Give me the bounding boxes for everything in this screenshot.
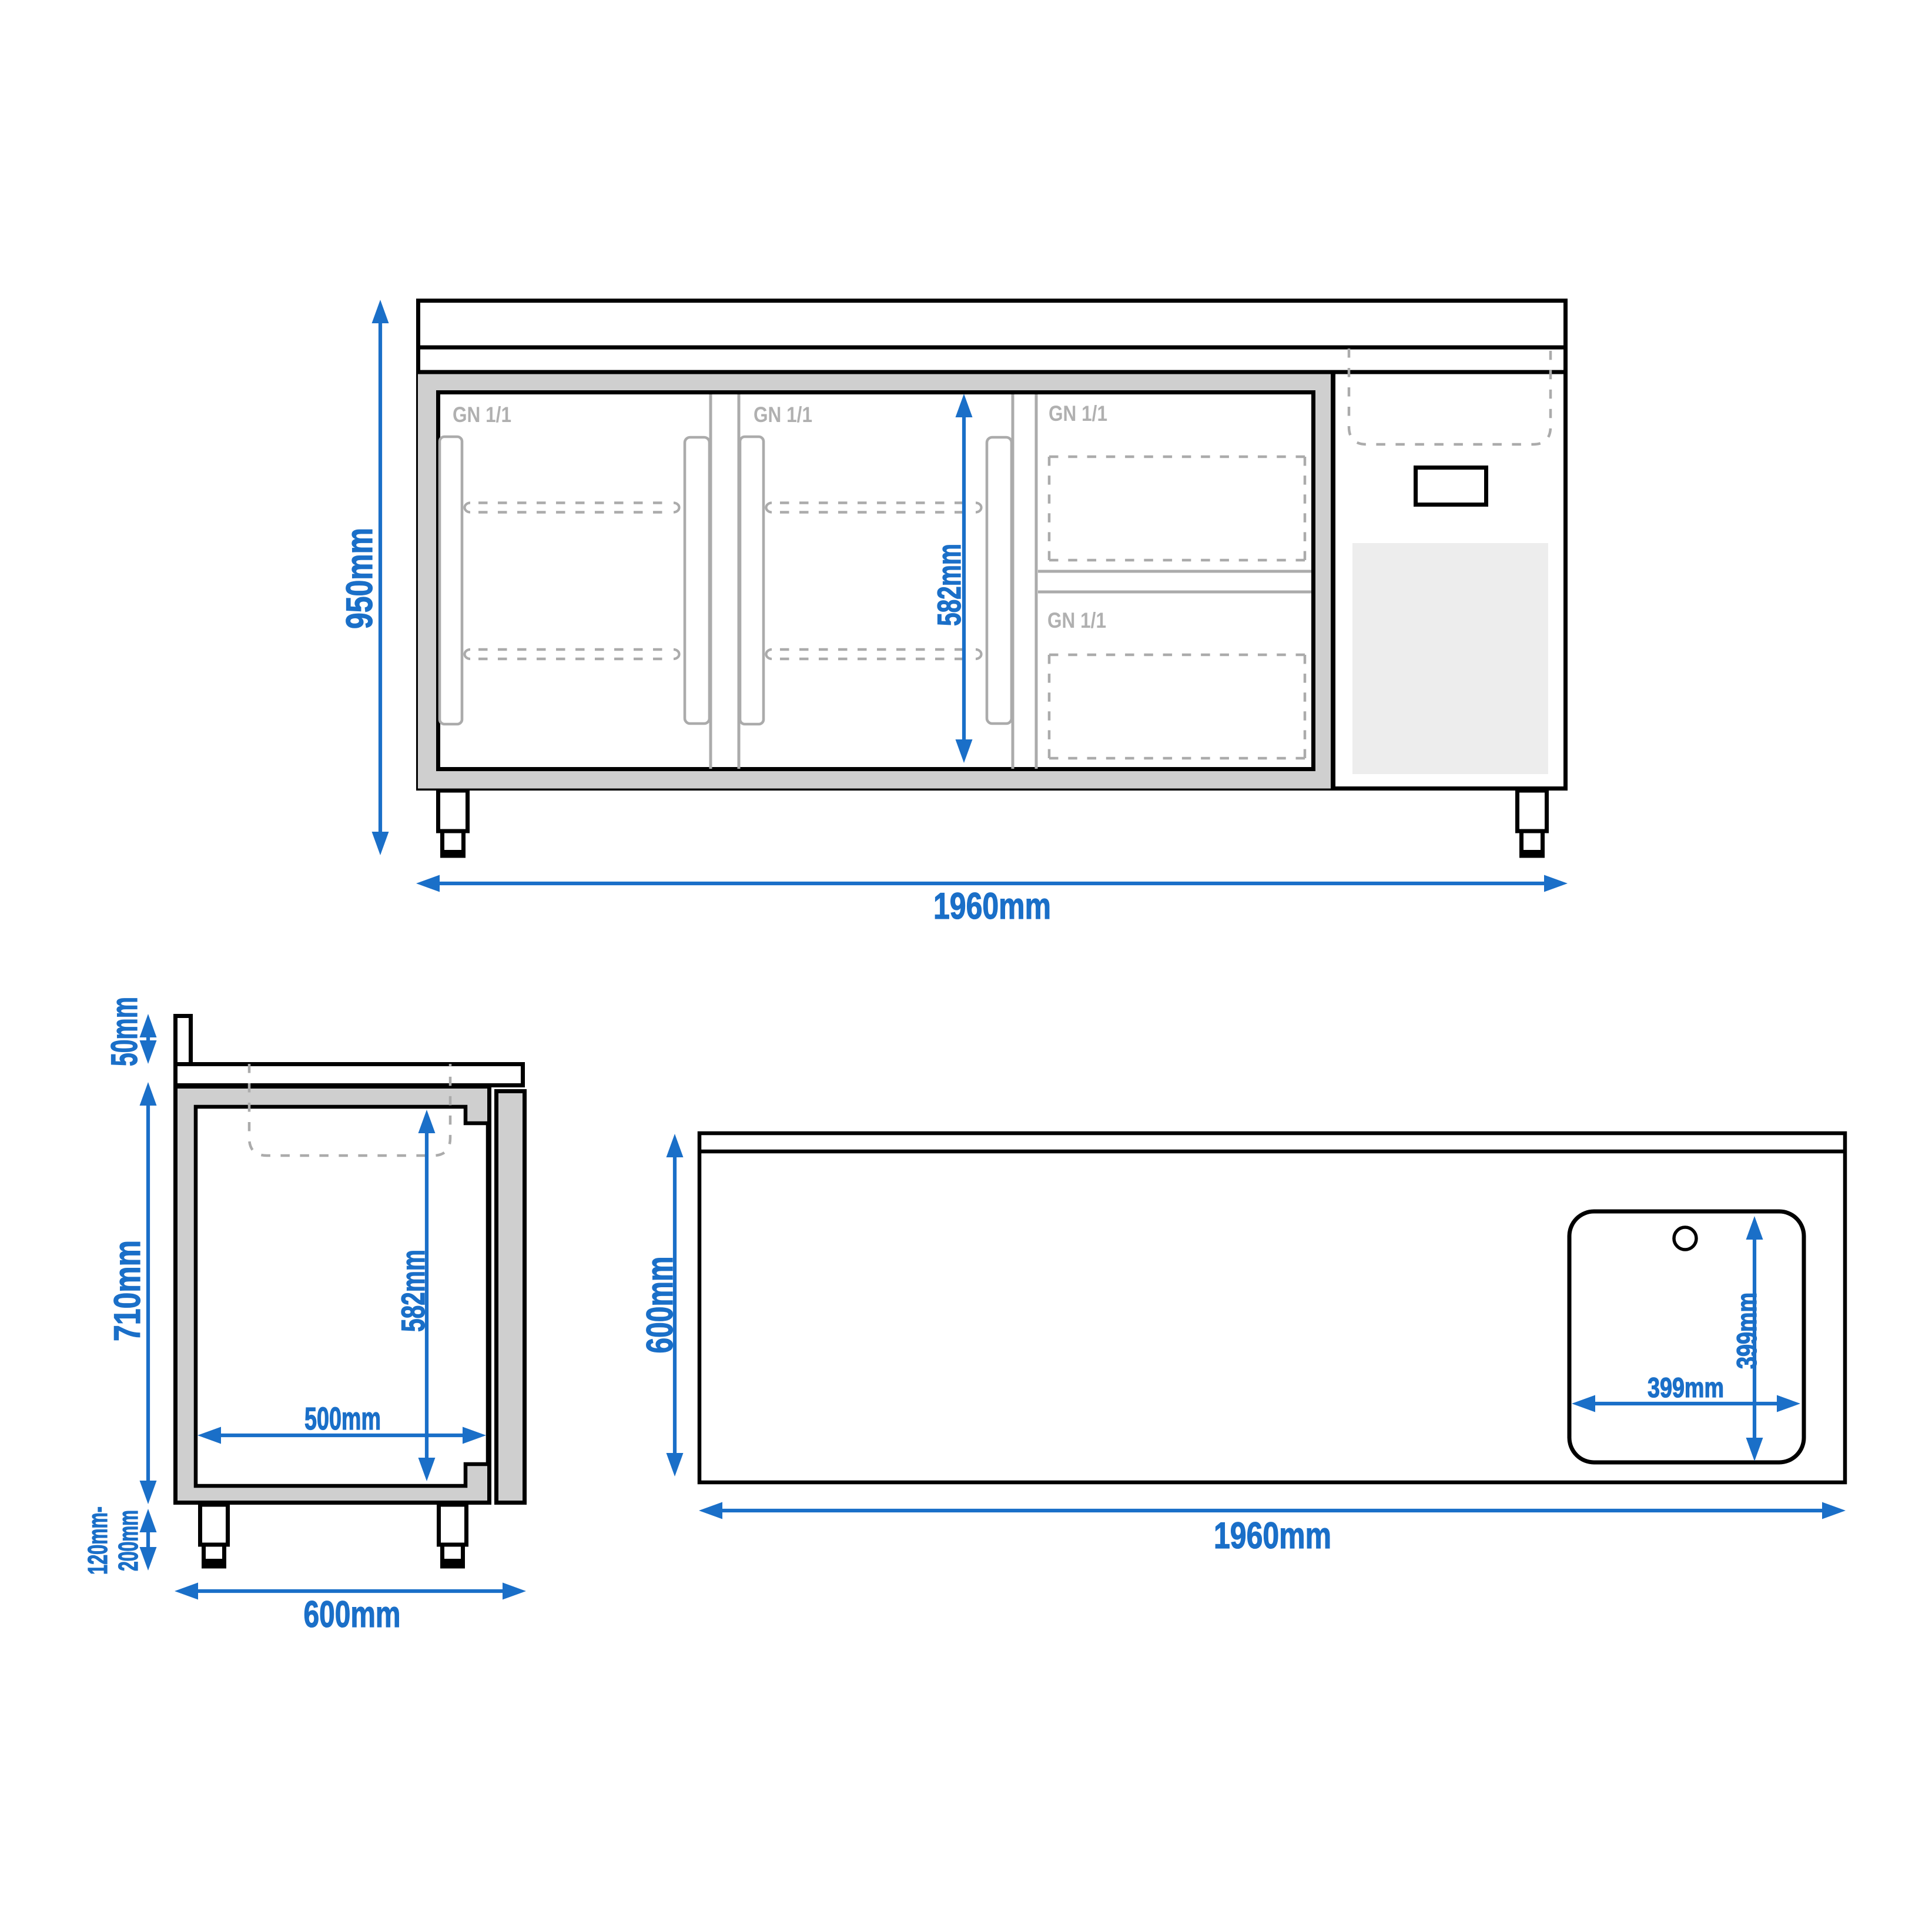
svg-text:1960mm: 1960mm — [933, 886, 1051, 927]
svg-text:600mm: 600mm — [639, 1257, 681, 1354]
svg-text:GN 1/1: GN 1/1 — [1047, 608, 1106, 632]
svg-text:600mm: 600mm — [304, 1594, 401, 1635]
svg-text:950mm: 950mm — [339, 528, 380, 629]
svg-text:582mm: 582mm — [394, 1250, 431, 1332]
svg-text:500mm: 500mm — [304, 1401, 381, 1437]
svg-text:399mm: 399mm — [1731, 1293, 1762, 1369]
svg-text:582mm: 582mm — [930, 544, 967, 626]
svg-text:GN 1/1: GN 1/1 — [754, 403, 812, 427]
svg-text:120mm-: 120mm- — [82, 1506, 113, 1575]
svg-text:GN 1/1: GN 1/1 — [1049, 401, 1107, 426]
svg-text:1960mm: 1960mm — [1214, 1515, 1331, 1556]
svg-text:GN 1/1: GN 1/1 — [453, 403, 511, 427]
svg-text:200mm: 200mm — [113, 1510, 143, 1571]
svg-text:399mm: 399mm — [1648, 1372, 1724, 1403]
svg-text:50mm: 50mm — [104, 997, 145, 1066]
svg-text:710mm: 710mm — [107, 1240, 148, 1341]
